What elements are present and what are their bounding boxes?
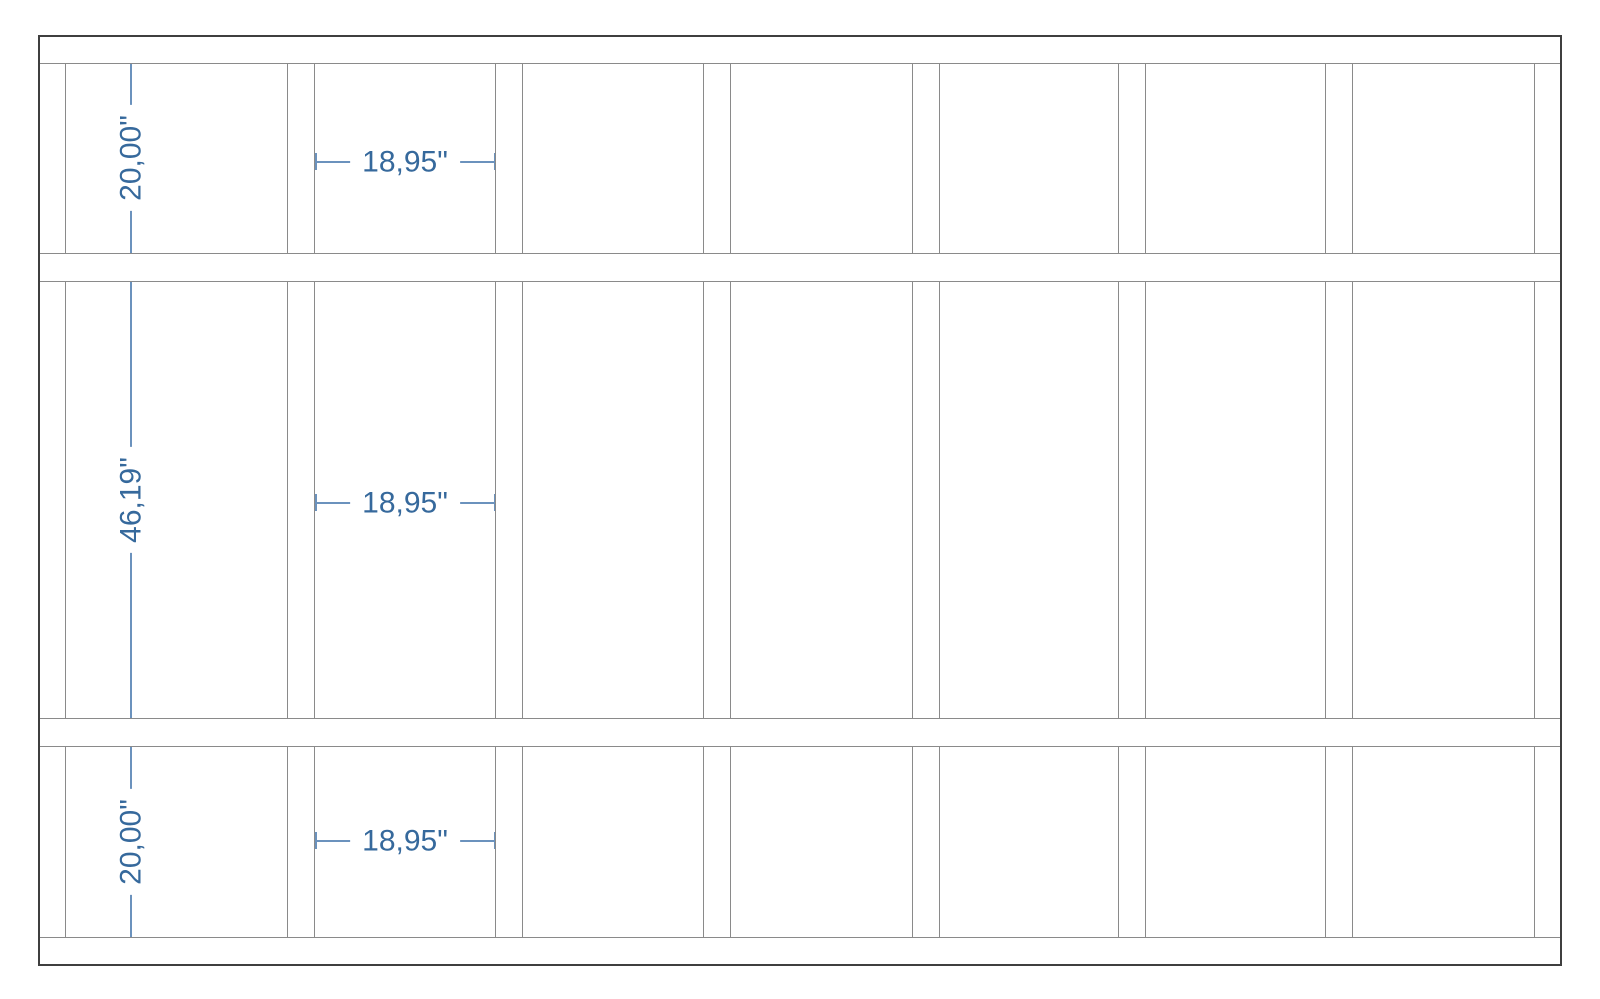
horizontal-dim-label-top: 18,95" <box>350 146 460 179</box>
vertical-dim-label-middle: 46,19" <box>113 447 150 553</box>
framing-drawing: 20,00" 46,19" 20,00" 18,95" 18,95" 18,95… <box>0 0 1600 999</box>
horizontal-dim-label-bottom: 18,95" <box>350 825 460 858</box>
vertical-dim-label-top: 20,00" <box>113 105 150 211</box>
vertical-dim-label-bottom: 20,00" <box>113 789 150 895</box>
horizontal-dim-label-middle: 18,95" <box>350 487 460 520</box>
frame-outline <box>38 35 1562 966</box>
